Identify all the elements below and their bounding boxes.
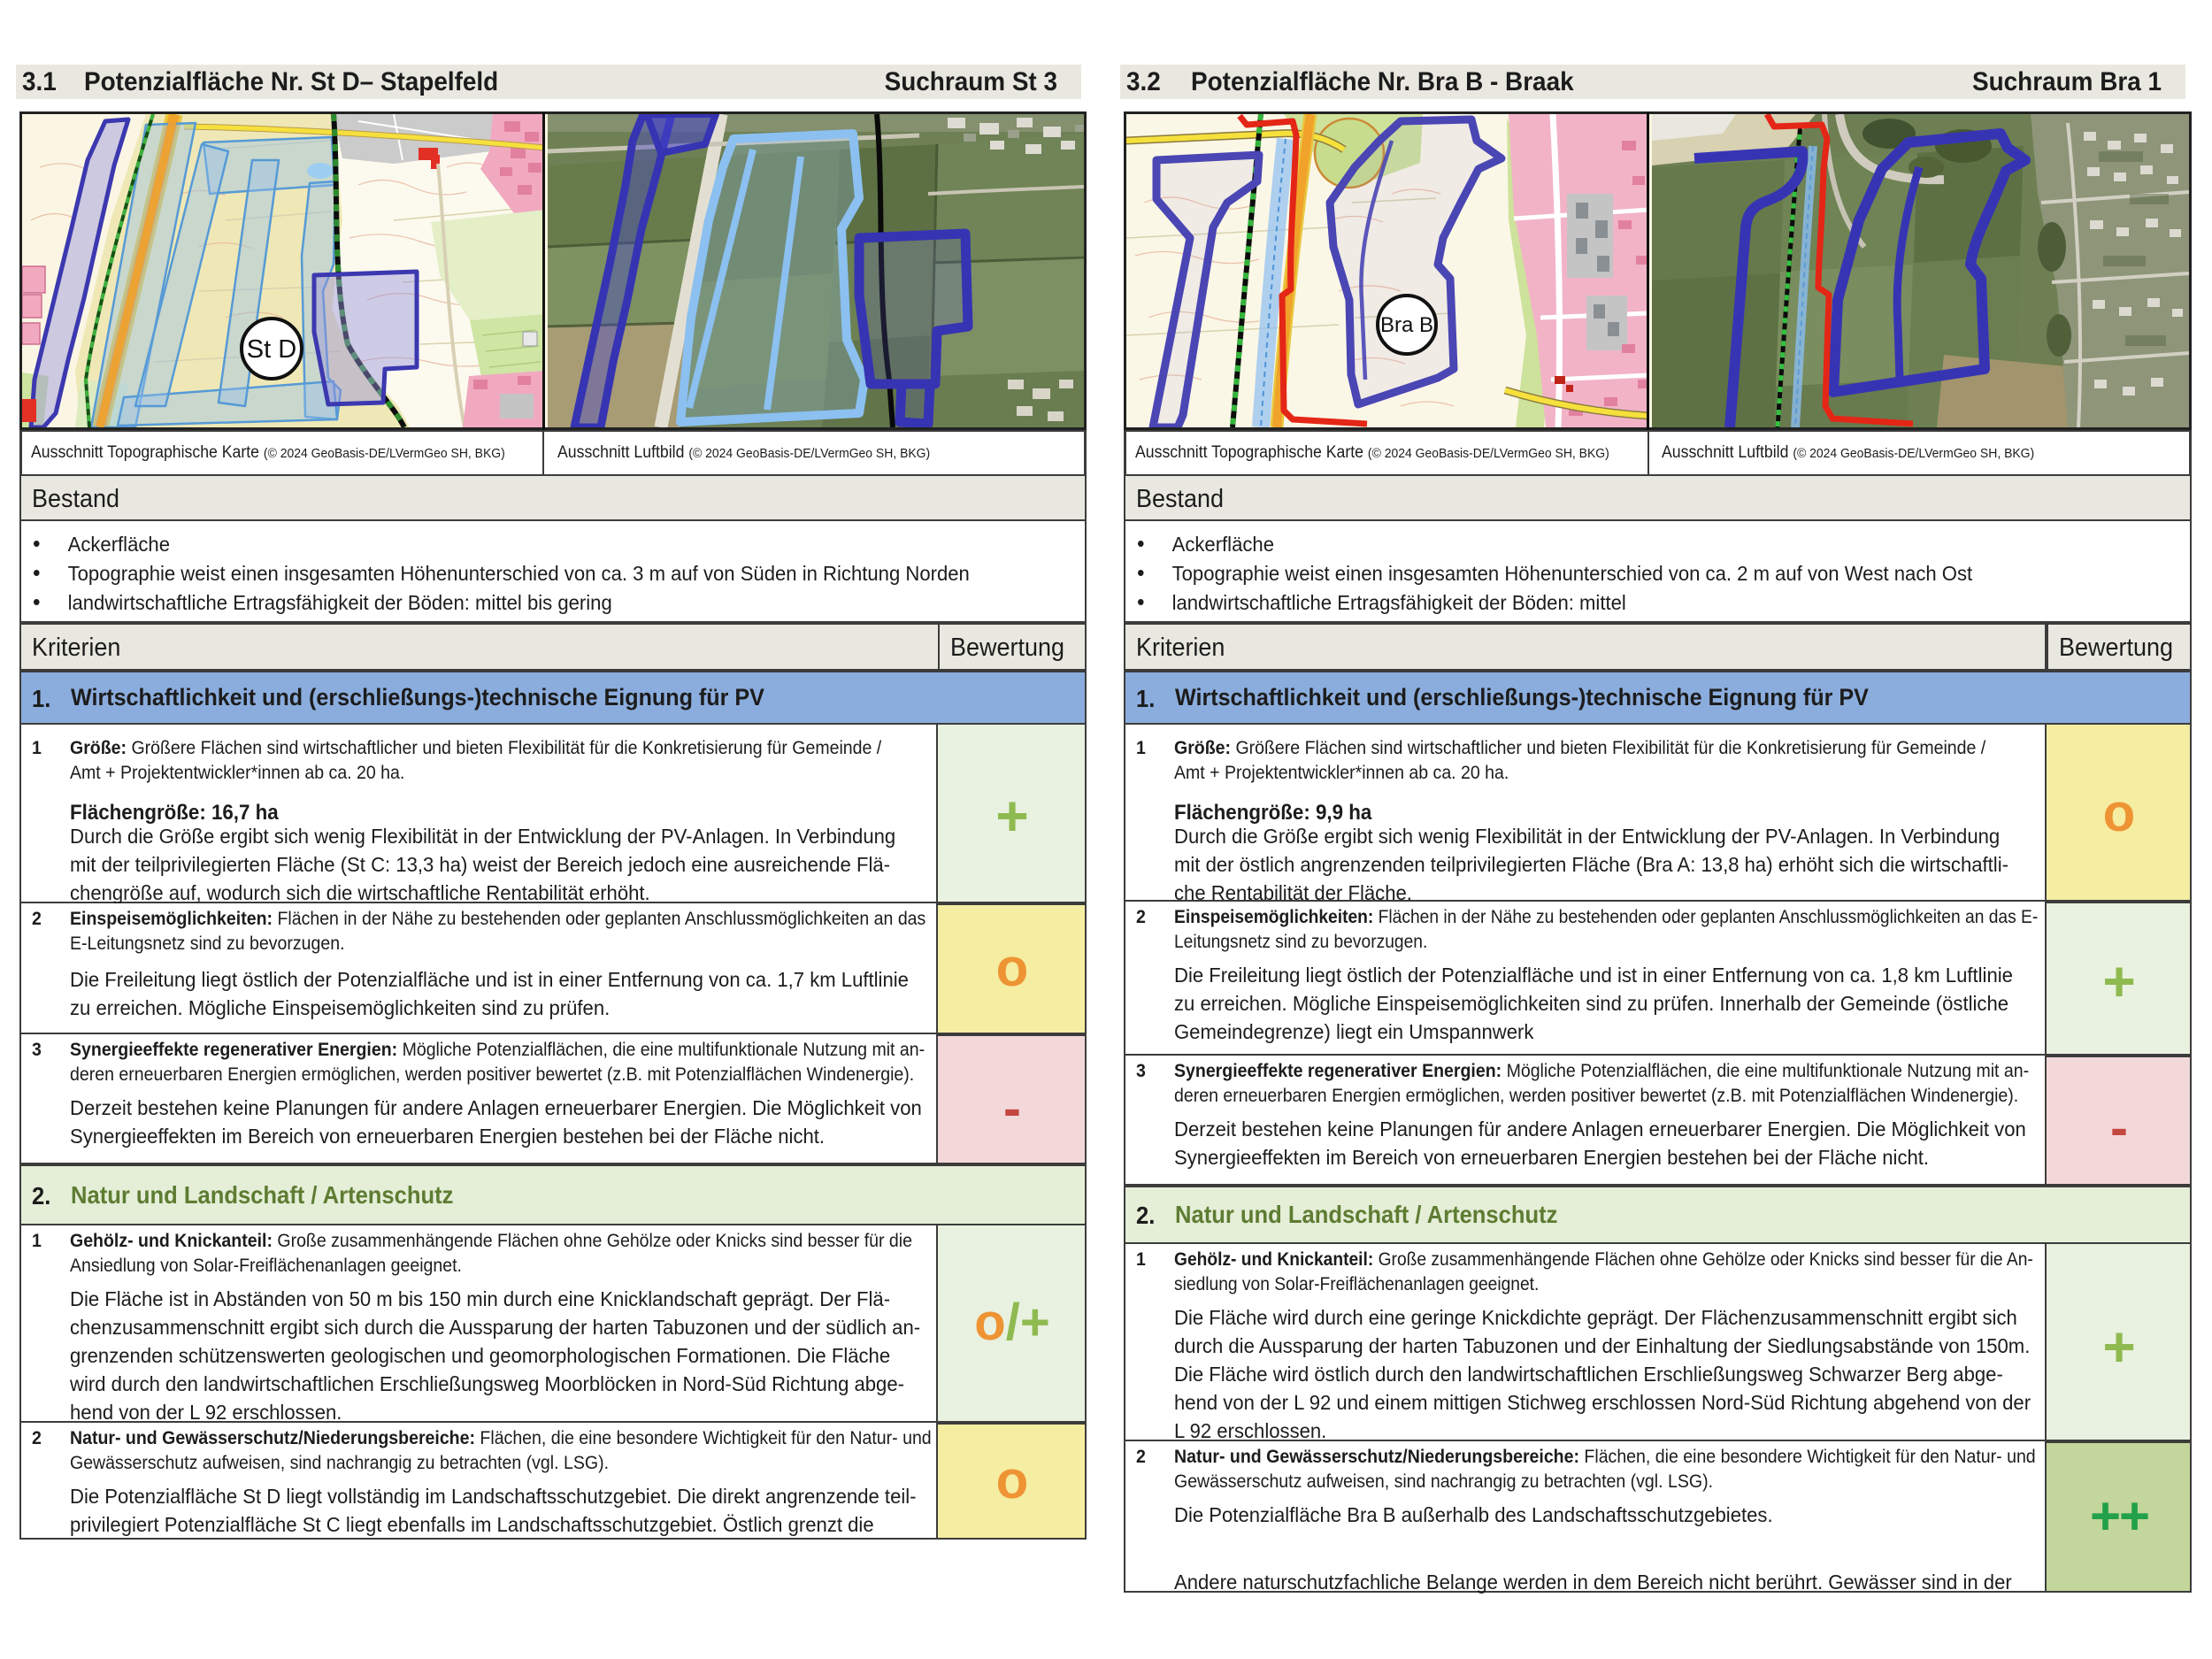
- svg-text:St D: St D: [247, 335, 296, 364]
- svg-text:Bra B: Bra B: [1380, 313, 1433, 337]
